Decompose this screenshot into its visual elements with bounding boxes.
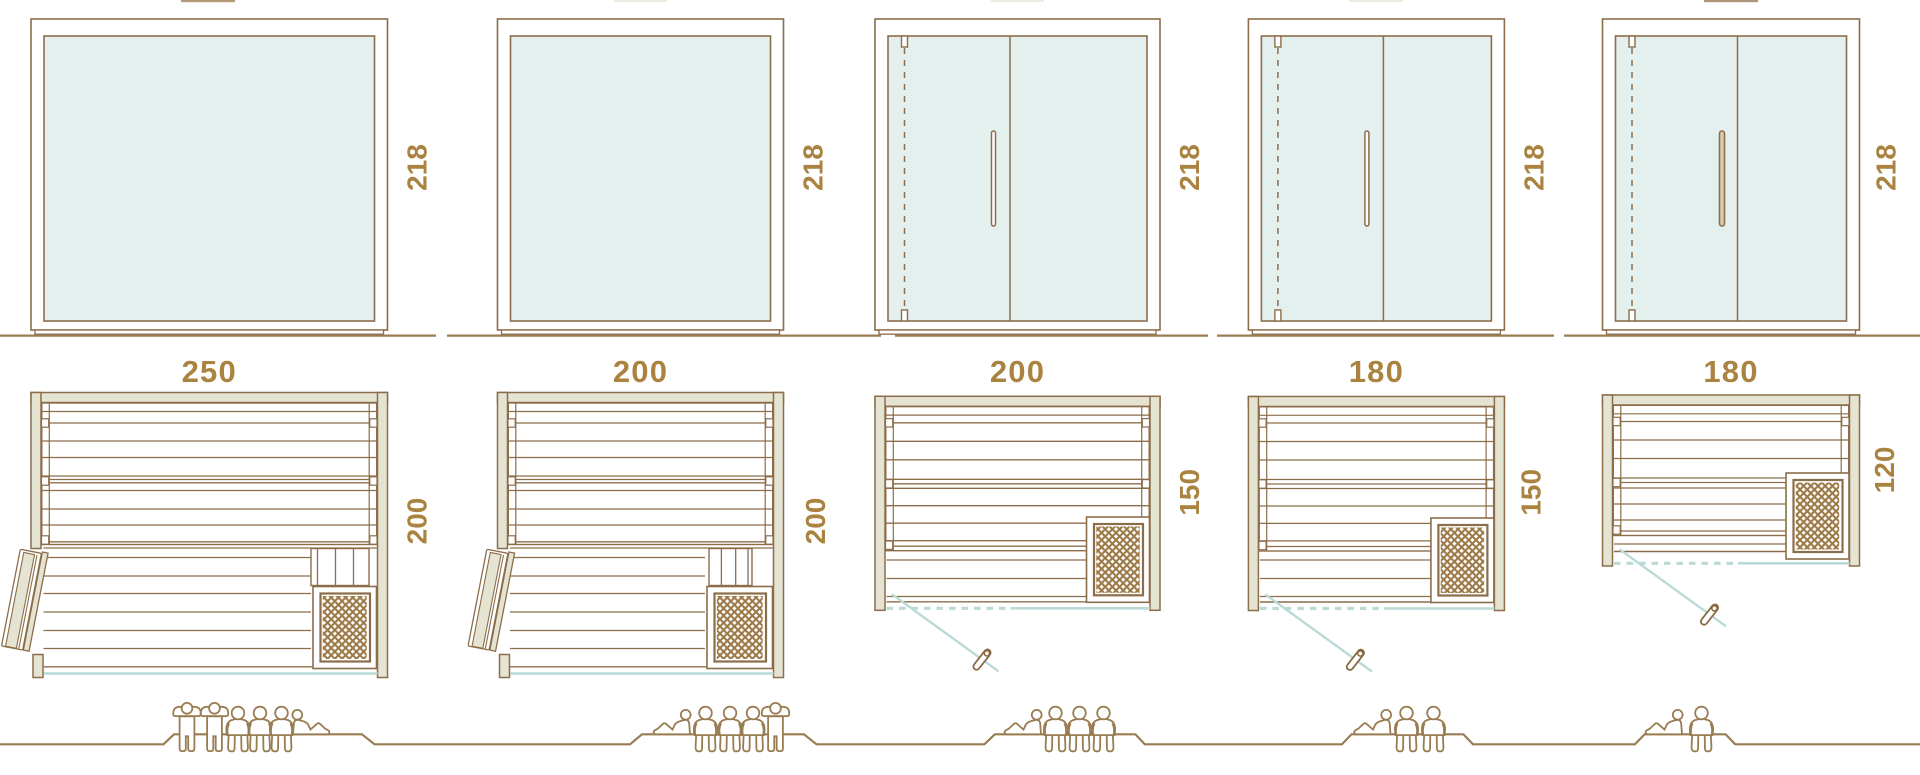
svg-text:150: 150 (1516, 469, 1547, 516)
svg-text:250: 250 (182, 354, 237, 389)
svg-text:218: 218 (1871, 144, 1902, 191)
svg-text:218: 218 (798, 144, 829, 191)
svg-text:200: 200 (402, 498, 433, 545)
svg-text:200: 200 (613, 354, 668, 389)
svg-text:200: 200 (990, 354, 1045, 389)
svg-text:150: 150 (1174, 469, 1205, 516)
svg-text:180: 180 (1703, 354, 1758, 389)
svg-text:218: 218 (402, 144, 433, 191)
svg-text:180: 180 (1349, 354, 1404, 389)
svg-text:200: 200 (800, 498, 831, 545)
svg-text:218: 218 (1518, 144, 1549, 191)
svg-text:218: 218 (1174, 144, 1205, 191)
svg-text:120: 120 (1869, 447, 1900, 494)
